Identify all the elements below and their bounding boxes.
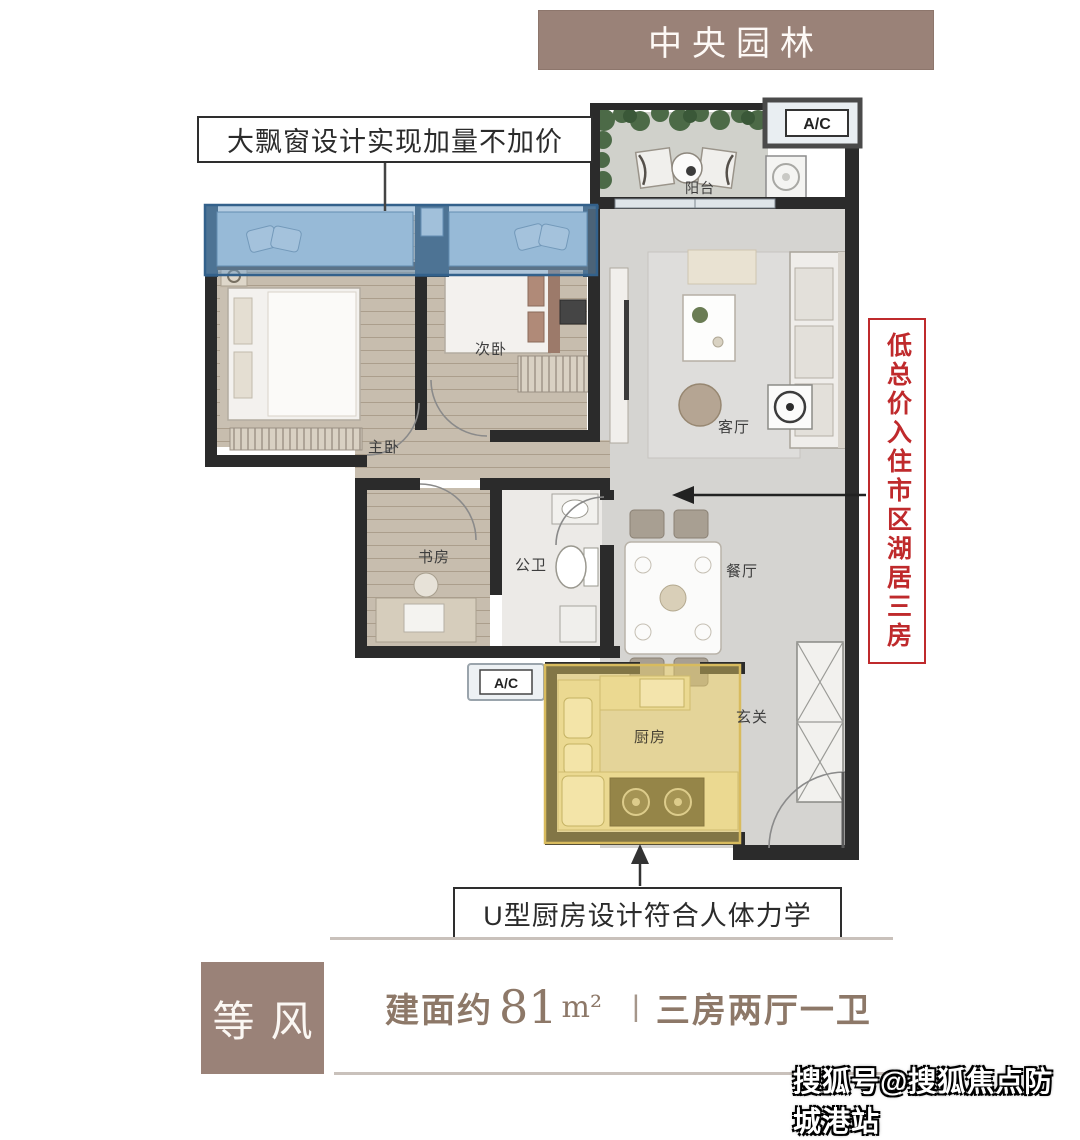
area-prefix: 建面约 [385, 983, 493, 1032]
banner-central-garden: 中央园林 [538, 10, 934, 70]
pillow [528, 312, 544, 342]
fan [768, 385, 812, 429]
layout-text: 三房两厅一卫 [656, 983, 872, 1032]
kitchen-highlight [545, 665, 740, 843]
washer [766, 156, 806, 198]
spec-divider: | [632, 990, 640, 1024]
centerpiece [660, 585, 686, 611]
ac-side-label: A/C [494, 675, 518, 691]
ac-platform-top: A/C [765, 100, 860, 146]
dining-chair [674, 510, 708, 538]
bench-mat [688, 250, 756, 284]
room-label-study: 书房 [418, 549, 450, 566]
dining-chair [630, 510, 664, 538]
laptop [404, 604, 444, 632]
master-wardrobe [230, 428, 362, 450]
pillow [234, 298, 252, 344]
area-unit: m² [562, 990, 602, 1025]
watermark-text: 搜狐号@搜狐焦点防城港站 [793, 1066, 1053, 1137]
bed-headboard [548, 268, 560, 353]
watermark: 搜狐号@搜狐焦点防城港站 [793, 1060, 1080, 1140]
room-label-dining-room: 餐厅 [726, 563, 758, 580]
callout-bay-window-text: 大飘窗设计实现加量不加价 [227, 120, 563, 159]
room-label-bathroom: 公卫 [515, 557, 547, 574]
room-label-master-bedroom: 主卧 [368, 439, 400, 456]
callout-kitchen-text: U型厨房设计符合人体力学 [483, 894, 812, 933]
chair [414, 573, 438, 597]
pillow [234, 352, 252, 398]
room-label-balcony: 阳台 [685, 180, 715, 196]
bay-window-highlight [205, 205, 597, 275]
callout-kitchen: U型厨房设计符合人体力学 [453, 887, 842, 939]
toilet [556, 546, 598, 588]
callout-bay-window: 大飘窗设计实现加量不加价 [197, 116, 593, 163]
room-label-living-room: 客厅 [718, 419, 750, 436]
callout-value-vertical: 低总价入住市区湖居三房 [868, 318, 926, 664]
tv [624, 300, 629, 400]
unit-spec: 建面约 81 m² | 三房两厅一卫 [385, 975, 872, 1039]
area-value: 81 [499, 980, 558, 1034]
divider-line-top [330, 937, 893, 940]
unit-name: 等风 [212, 988, 328, 1049]
room-label-kitchen: 厨房 [634, 729, 666, 746]
room-label-entry: 玄关 [736, 709, 768, 726]
pillow [528, 276, 544, 306]
room-label-second-bedroom: 次卧 [475, 341, 507, 358]
banner-title: 中央园林 [648, 16, 824, 65]
wardrobe [518, 356, 590, 392]
coffee-table [683, 295, 735, 361]
ottoman [679, 384, 721, 426]
callout-value-text: 低总价入住市区湖居三房 [885, 332, 910, 651]
blanket [268, 292, 356, 416]
unit-name-box: 等风 [201, 962, 324, 1074]
balcony-table-deco [686, 166, 696, 176]
ac-top-label: A/C [803, 116, 831, 133]
shower-tray [560, 606, 596, 642]
ac-platform-side: A/C [468, 664, 544, 700]
entry-fixtures [797, 642, 843, 802]
tv-unit-small [560, 300, 586, 324]
balcony-chair-left [636, 148, 675, 188]
